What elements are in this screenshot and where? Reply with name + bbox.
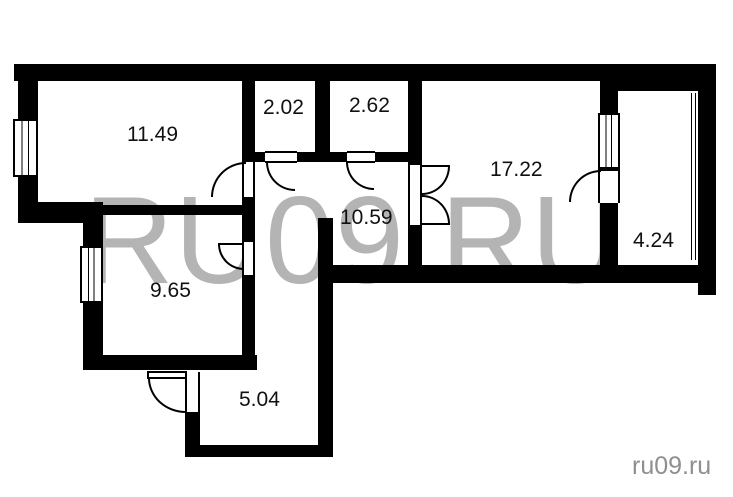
room-area-label: 2.02	[263, 96, 304, 120]
wall-B-bottom	[408, 225, 422, 273]
wall-A-mid	[242, 197, 255, 242]
window-balcony-wall	[598, 113, 620, 169]
double-door-leaf-bottom	[422, 223, 450, 225]
floor-plan: 11.49 2.02 2.62 17.22 10.59 9.65 4.24 5.…	[0, 0, 733, 497]
wall-bottom-right-section	[333, 265, 716, 283]
window-room9	[80, 246, 103, 303]
room-area-label: 11.49	[127, 123, 178, 147]
watermark-corner: ru09.ru	[632, 452, 711, 481]
wall-left-step	[18, 202, 103, 223]
room-area-label: 9.65	[150, 279, 191, 303]
wall-corridor-right	[318, 218, 333, 457]
balcony-glazing	[691, 93, 696, 260]
door-frame-balcony	[598, 169, 620, 203]
wall-right	[698, 64, 716, 295]
wall-C-bottom	[600, 203, 618, 265]
room-area-label: 5.04	[239, 388, 280, 412]
room-area-label: 2.62	[349, 94, 390, 118]
room-area-label: 4.24	[633, 229, 674, 253]
wall-B-top	[408, 81, 422, 165]
wall-smallrooms-bottom-a	[242, 152, 265, 162]
wall-A-top	[242, 81, 255, 162]
wall-left-upper	[18, 64, 38, 120]
door-arc-entry	[148, 378, 186, 413]
door-frame-double	[408, 165, 422, 225]
door-arc-room11	[211, 162, 246, 197]
window-left-wall	[13, 119, 38, 177]
wall-entry-bottom	[185, 445, 333, 457]
wall-room9-left-upper	[83, 223, 103, 247]
wall-C-top	[600, 64, 618, 115]
wall-smallrooms-bottom-c	[375, 152, 408, 162]
wall-top-left	[14, 64, 607, 81]
wall-partition-11-9	[103, 205, 245, 215]
wall-divider-202-262	[315, 81, 330, 162]
door-frame-entry	[185, 372, 200, 412]
room-area-label: 10.59	[340, 206, 393, 230]
room-area-label: 17.22	[490, 158, 543, 182]
balcony-door-leaf	[599, 169, 619, 171]
wall-A-low	[242, 275, 255, 355]
wall-room9-bottom	[83, 355, 257, 370]
